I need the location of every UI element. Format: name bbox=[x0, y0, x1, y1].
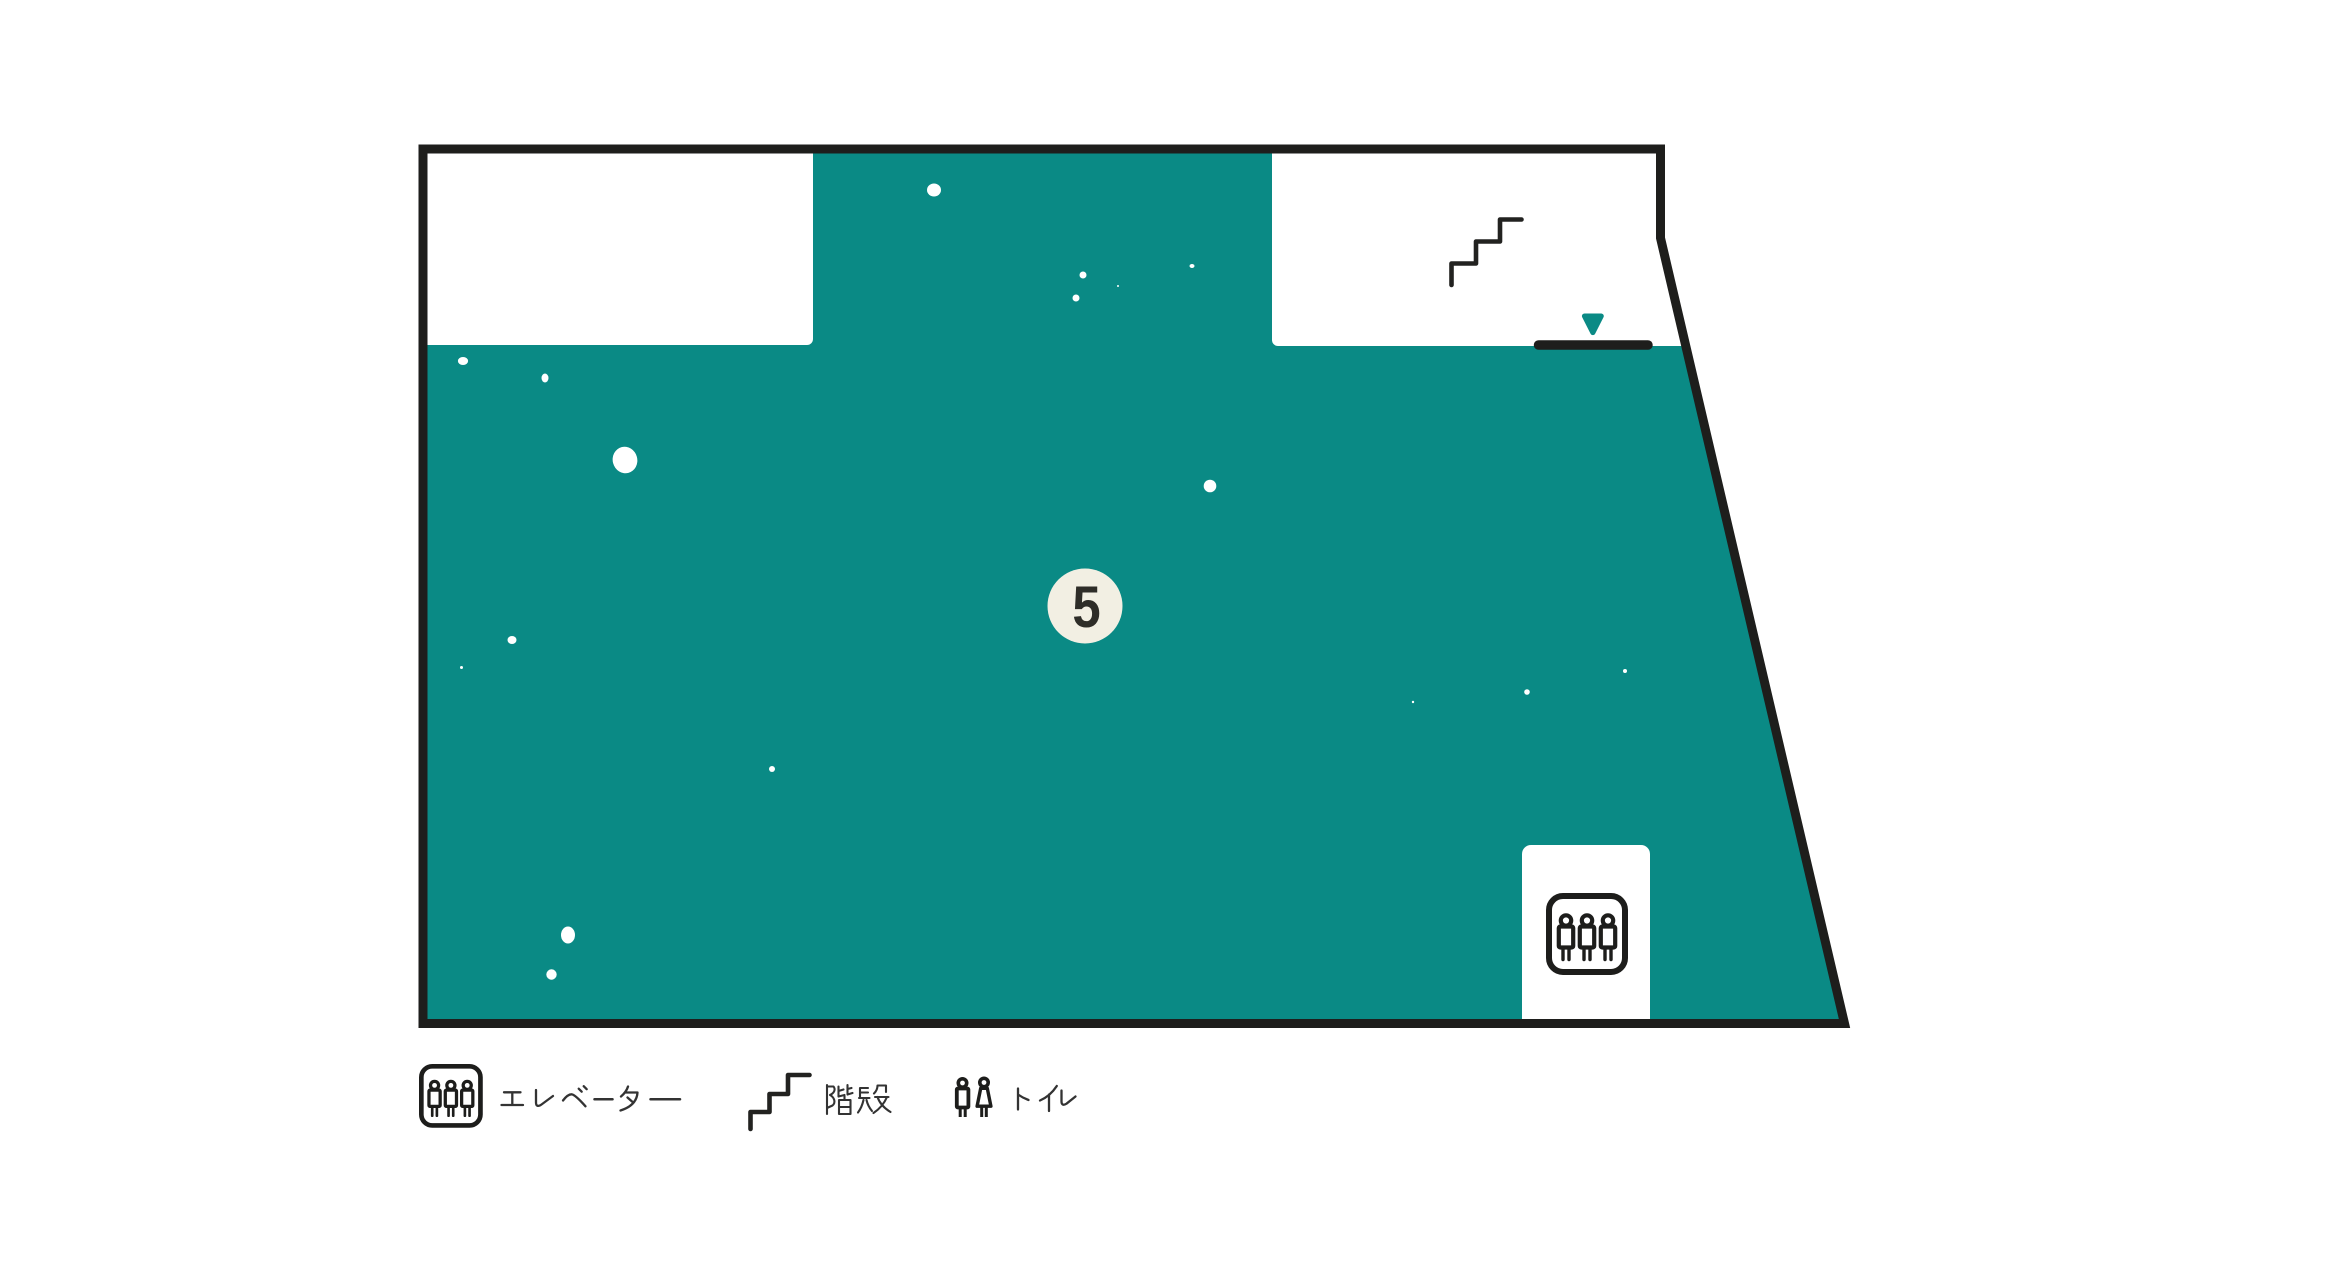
svg-text:5: 5 bbox=[1072, 573, 1100, 639]
